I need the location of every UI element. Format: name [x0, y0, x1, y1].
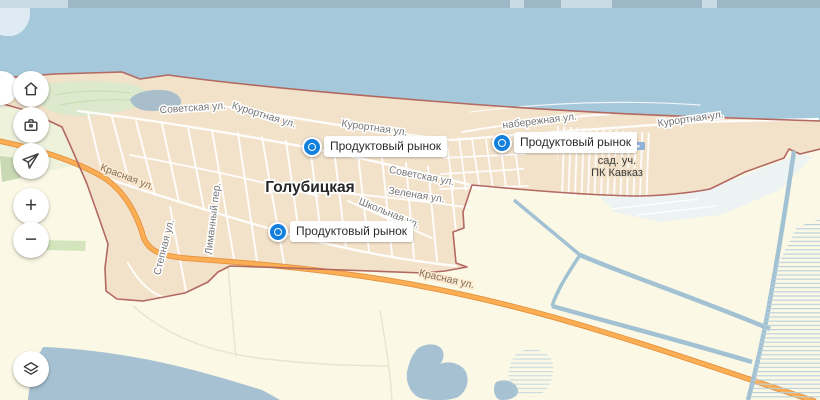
home-button[interactable] [13, 71, 49, 107]
market-label-3[interactable]: Продуктовый рынок [290, 221, 413, 242]
garden-area-label: ПК Кавказ [591, 167, 643, 179]
garden-area-label: сад. уч. [598, 155, 636, 167]
plus-icon: + [25, 195, 37, 216]
marker-core [499, 140, 505, 146]
market-label-1[interactable]: Продуктовый рынок [324, 136, 447, 157]
market-marker-3[interactable] [268, 222, 288, 242]
market-marker-1[interactable] [302, 137, 322, 157]
layers-button[interactable] [13, 351, 49, 387]
map-app: Советская ул. Курортная ул. Курортная ул… [0, 0, 820, 400]
zoom-out-button[interactable]: − [13, 222, 49, 258]
marker-core [309, 144, 315, 150]
top-strip [0, 0, 820, 8]
top-strip-segment [612, 0, 702, 8]
market-label-2[interactable]: Продуктовый рынок [514, 132, 637, 153]
town-label: Голубицкая [265, 179, 354, 196]
map-canvas[interactable]: Советская ул. Курортная ул. Курортная ул… [0, 0, 820, 400]
top-strip-segment [68, 0, 510, 8]
top-strip-segment [524, 0, 561, 8]
top-strip-segment [717, 0, 820, 8]
market-marker-2[interactable] [492, 133, 512, 153]
my-location-button[interactable] [13, 143, 49, 179]
briefcase-icon [21, 115, 41, 135]
layers-icon [21, 359, 41, 379]
navigation-arrow-icon [21, 151, 41, 171]
home-icon [21, 79, 41, 99]
bookmarks-button[interactable] [13, 107, 49, 143]
marker-core [275, 229, 281, 235]
zoom-in-button[interactable]: + [13, 188, 49, 224]
minus-icon: − [25, 229, 37, 250]
